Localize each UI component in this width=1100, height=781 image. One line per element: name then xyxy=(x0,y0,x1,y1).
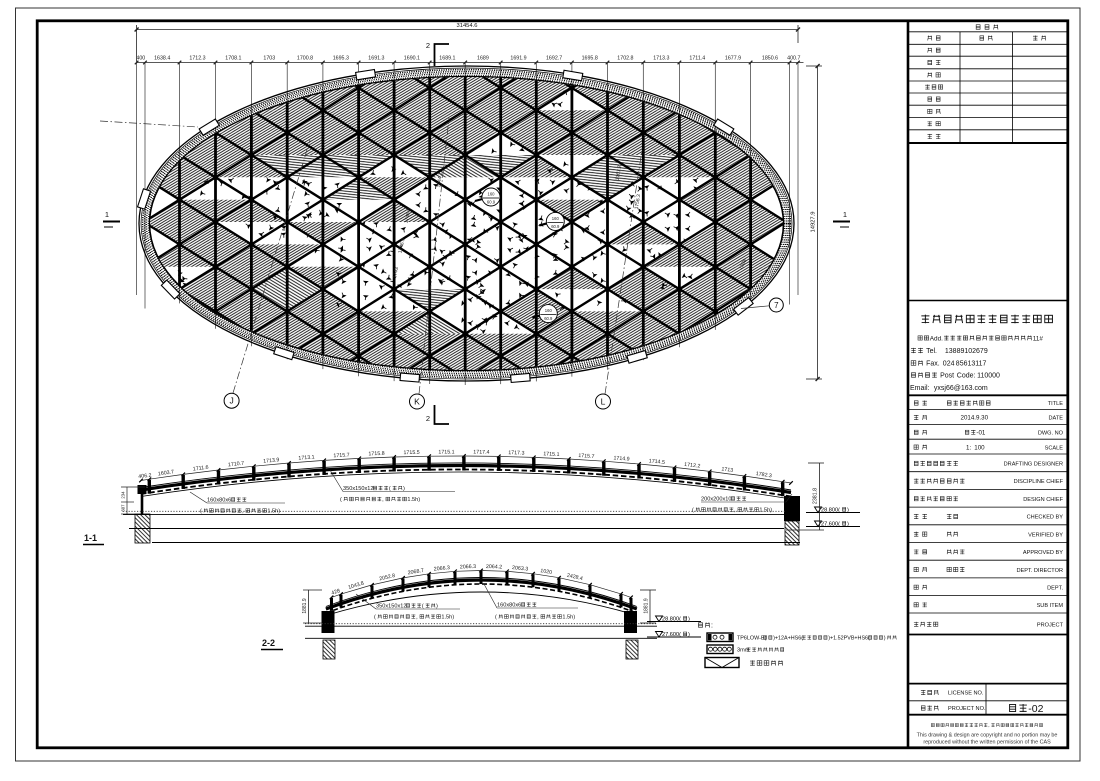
svg-text:): ) xyxy=(847,521,849,527)
svg-text:DEPT. DIRECTOR: DEPT. DIRECTOR xyxy=(1016,568,1063,574)
svg-text:PROJECT NO.: PROJECT NO. xyxy=(948,706,986,712)
svg-text:): ) xyxy=(436,604,438,610)
svg-text:Fax.: Fax. xyxy=(926,361,940,368)
svg-text:1713.3: 1713.3 xyxy=(653,56,669,62)
svg-text:,: , xyxy=(988,724,989,729)
svg-text:1708.1: 1708.1 xyxy=(225,56,241,62)
svg-text:Email:: Email: xyxy=(910,385,930,392)
svg-text:Tel.: Tel. xyxy=(926,348,937,355)
svg-text:28.800(: 28.800( xyxy=(662,616,681,622)
svg-text:1715.7: 1715.7 xyxy=(578,453,595,460)
svg-text:160x80x6: 160x80x6 xyxy=(207,498,231,504)
svg-text:1713.1: 1713.1 xyxy=(298,455,315,462)
svg-text:1690.1: 1690.1 xyxy=(404,56,420,62)
svg-text:350x150x12: 350x150x12 xyxy=(376,604,406,610)
svg-text:1.5h): 1.5h) xyxy=(441,615,454,621)
svg-text:234: 234 xyxy=(121,491,126,499)
svg-text:CHECKED BY: CHECKED BY xyxy=(1027,515,1064,521)
svg-text:110000: 110000 xyxy=(977,373,1000,380)
svg-text:400: 400 xyxy=(136,56,145,62)
svg-text:2064.2: 2064.2 xyxy=(486,564,502,570)
svg-text:14927.9: 14927.9 xyxy=(811,212,817,233)
svg-text:160x80x6: 160x80x6 xyxy=(497,603,521,609)
svg-text:13889102679: 13889102679 xyxy=(945,348,988,355)
svg-text:1703: 1703 xyxy=(263,56,275,62)
svg-text:-02: -02 xyxy=(1028,703,1043,715)
svg-text:): ) xyxy=(688,632,690,638)
svg-text:1711.4: 1711.4 xyxy=(689,56,705,62)
svg-text:1-1: 1-1 xyxy=(84,533,97,543)
svg-text:1.5h): 1.5h) xyxy=(267,509,280,515)
svg-text:1691.3: 1691.3 xyxy=(368,56,384,62)
svg-text:VERIFIED BY: VERIFIED BY xyxy=(1028,532,1063,538)
svg-text:024: 024 xyxy=(943,361,955,368)
svg-text:100: 100 xyxy=(974,444,985,451)
svg-text:2066.3: 2066.3 xyxy=(460,564,476,571)
svg-text:DWG. NO: DWG. NO xyxy=(1038,431,1064,437)
svg-text:1691.9: 1691.9 xyxy=(510,56,526,62)
svg-text:)+1.52PVB+HS6(: )+1.52PVB+HS6( xyxy=(828,635,870,641)
svg-text:1689: 1689 xyxy=(477,56,489,62)
svg-text:1695.8: 1695.8 xyxy=(582,56,598,62)
svg-text:160: 160 xyxy=(545,308,553,313)
svg-text:reproduced without the written: reproduced without the written permissio… xyxy=(923,740,1051,746)
svg-text:1715.1: 1715.1 xyxy=(438,449,454,455)
svg-text:2: 2 xyxy=(426,414,430,423)
svg-text:1717.3: 1717.3 xyxy=(508,450,524,456)
svg-text:2014.9.30: 2014.9.30 xyxy=(961,415,989,422)
svg-text:1692.7: 1692.7 xyxy=(546,56,562,62)
svg-text:607: 607 xyxy=(121,504,126,512)
svg-text:11#: 11# xyxy=(1033,335,1044,342)
svg-text:): ) xyxy=(884,635,886,641)
svg-text:350x150x12: 350x150x12 xyxy=(343,486,373,492)
svg-text:60.9: 60.9 xyxy=(544,316,553,321)
svg-text:(: ( xyxy=(200,509,202,515)
svg-text:1702.8: 1702.8 xyxy=(617,56,633,62)
svg-text:)+12A+HS6(: )+12A+HS6( xyxy=(773,635,803,641)
svg-text::: : xyxy=(711,623,713,630)
svg-text:31454.6: 31454.6 xyxy=(457,23,478,29)
svg-text:Post: Post xyxy=(940,373,954,380)
svg-text:DISCIPLINE CHIEF: DISCIPLINE CHIEF xyxy=(1014,479,1064,485)
svg-text:1717.4: 1717.4 xyxy=(473,450,489,456)
svg-text:27.600(: 27.600( xyxy=(662,632,681,638)
svg-text:1712.3: 1712.3 xyxy=(189,56,205,62)
svg-text:60.9: 60.9 xyxy=(487,200,496,205)
svg-text:1700.8: 1700.8 xyxy=(297,56,313,62)
svg-text:2381.8: 2381.8 xyxy=(813,488,819,504)
svg-text:3mm: 3mm xyxy=(737,648,750,654)
svg-text:1881.9: 1881.9 xyxy=(302,598,308,614)
svg-text:1689.1: 1689.1 xyxy=(439,56,455,62)
svg-text:TP6LOW-E(: TP6LOW-E( xyxy=(737,635,766,641)
svg-text:1.5h): 1.5h) xyxy=(759,508,772,514)
svg-text:400.7: 400.7 xyxy=(787,56,800,62)
svg-text:LICENSE NO.: LICENSE NO. xyxy=(948,691,984,697)
svg-text:(: ( xyxy=(495,615,497,621)
svg-text:DRAFTING DESIGNER: DRAFTING DESIGNER xyxy=(1004,462,1063,468)
svg-text:27.600(: 27.600( xyxy=(821,521,840,527)
svg-text:160: 160 xyxy=(488,192,496,197)
svg-text:1: 1 xyxy=(843,210,847,219)
svg-text:1715.7: 1715.7 xyxy=(333,452,350,459)
svg-text:(: ( xyxy=(340,497,342,503)
svg-text:SCALE: SCALE xyxy=(1045,445,1064,451)
svg-text:200x200x10: 200x200x10 xyxy=(701,497,731,503)
svg-text:1715.5: 1715.5 xyxy=(403,450,419,456)
svg-text:K: K xyxy=(414,396,420,406)
svg-text:1638.4: 1638.4 xyxy=(154,56,170,62)
svg-text:): ) xyxy=(403,486,405,492)
svg-text:(: ( xyxy=(692,508,694,514)
svg-text:60.9: 60.9 xyxy=(551,224,560,229)
svg-text:160: 160 xyxy=(552,216,560,221)
svg-text:2: 2 xyxy=(426,41,430,50)
svg-text:(: ( xyxy=(389,486,391,492)
svg-text:85613117: 85613117 xyxy=(956,361,987,368)
svg-text:SUB ITEM: SUB ITEM xyxy=(1037,603,1064,609)
svg-text:1.5h): 1.5h) xyxy=(407,497,420,503)
svg-text:1695.3: 1695.3 xyxy=(333,56,349,62)
svg-text:J: J xyxy=(229,396,233,406)
svg-text:DATE: DATE xyxy=(1048,416,1063,422)
svg-text:TITLE: TITLE xyxy=(1048,401,1063,407)
svg-text:Code:: Code: xyxy=(957,373,976,380)
svg-text:yxsj66@163.com: yxsj66@163.com xyxy=(934,385,988,392)
svg-text:1715.8: 1715.8 xyxy=(368,451,384,458)
svg-text:1.5h): 1.5h) xyxy=(562,615,575,621)
svg-text:L: L xyxy=(601,396,606,406)
svg-text:7: 7 xyxy=(774,301,779,310)
svg-text:(: ( xyxy=(374,615,376,621)
svg-text:1881.9: 1881.9 xyxy=(644,598,650,614)
svg-text:PROJECT: PROJECT xyxy=(1037,623,1064,629)
svg-text:28.800(: 28.800( xyxy=(821,507,840,513)
svg-text:DEPT.: DEPT. xyxy=(1047,586,1063,592)
svg-text:1850.6: 1850.6 xyxy=(762,56,778,62)
svg-text:): ) xyxy=(688,616,690,622)
svg-text:1677.9: 1677.9 xyxy=(725,56,741,62)
svg-text:1715.1: 1715.1 xyxy=(543,451,560,458)
svg-text:APPROVED BY: APPROVED BY xyxy=(1023,550,1063,556)
svg-text:2-2: 2-2 xyxy=(262,638,275,648)
svg-text:DESIGN CHIEF: DESIGN CHIEF xyxy=(1023,497,1063,503)
svg-text:This drawing & design are copy: This drawing & design are copyright and … xyxy=(917,733,1058,739)
svg-text:(: ( xyxy=(422,604,424,610)
svg-text:1: 1 xyxy=(105,210,109,219)
svg-text:): ) xyxy=(847,507,849,513)
svg-text:1:: 1: xyxy=(966,444,971,451)
svg-text:Add.: Add. xyxy=(930,335,943,342)
svg-text:-01: -01 xyxy=(976,430,986,437)
